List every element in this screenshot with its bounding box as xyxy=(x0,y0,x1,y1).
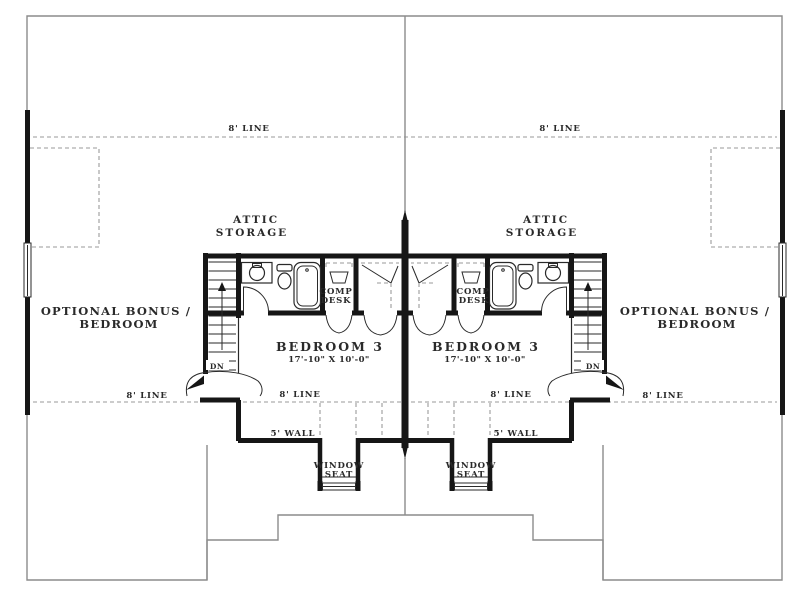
bay-window-jamb xyxy=(356,481,361,491)
closet xyxy=(361,263,399,335)
label-8ft-line-top-left: 8' LINE xyxy=(228,124,269,134)
party-wall xyxy=(402,210,409,459)
door-leaf-icon xyxy=(186,376,204,391)
label-8ft-line-mid-centerright: 8' LINE xyxy=(490,390,531,400)
label-5ft-wall-left: 5' WALL xyxy=(271,429,316,439)
label-bonus-right-2: BEDROOM xyxy=(657,317,736,331)
label-attic-left-2: STORAGE xyxy=(216,227,288,239)
label-bedroom3-dims-left: 17'-10" X 10'-0" xyxy=(288,355,369,365)
label-attic-right-2: STORAGE xyxy=(506,227,578,239)
label-bedroom3-dims-right: 17'-10" X 10'-0" xyxy=(444,355,525,365)
desk-icon xyxy=(330,272,348,283)
desk-dashed-shelf xyxy=(326,263,352,270)
stair-direction-arrow-icon xyxy=(218,282,226,291)
label-window-seat-right-2: SEAT xyxy=(457,470,485,480)
floor-plan: 8' LINE 8' LINE ATTIC STORAGE ATTIC STOR… xyxy=(0,0,800,594)
stair-double-door xyxy=(186,371,262,400)
closet-dashed-lines xyxy=(377,283,391,310)
label-comp-left-2: DESK xyxy=(321,296,352,306)
label-window-seat-left-2: SEAT xyxy=(325,470,353,480)
label-bonus-left-1: OPTIONAL BONUS / xyxy=(41,304,191,318)
label-dn-left: DN xyxy=(210,362,224,371)
staircase xyxy=(206,262,236,370)
label-bedroom3-left: BEDROOM 3 xyxy=(276,339,384,354)
party-wall-body xyxy=(402,220,409,448)
bathtub-inner xyxy=(297,266,318,306)
toilet-bowl-icon xyxy=(278,273,291,289)
bathtub-drain-icon xyxy=(306,269,309,272)
label-attic-left-1: ATTIC xyxy=(232,214,279,226)
label-8ft-line-mid-right: 8' LINE xyxy=(642,391,683,401)
floor-plan-drawing: 8' LINE 8' LINE ATTIC STORAGE ATTIC STOR… xyxy=(0,0,800,594)
label-8ft-line-mid-left: 8' LINE xyxy=(126,391,167,401)
closet-rod-lines xyxy=(362,265,398,283)
label-8ft-line-top-right: 8' LINE xyxy=(539,124,580,134)
label-comp-right-2: DESK xyxy=(459,296,490,306)
bay-window-jamb xyxy=(318,481,323,491)
bay-dashed-projections xyxy=(320,403,382,437)
label-bedroom3-right: BEDROOM 3 xyxy=(432,339,540,354)
label-attic-right-1: ATTIC xyxy=(522,214,569,226)
label-bonus-right-1: OPTIONAL BONUS / xyxy=(620,304,770,318)
bathroom-door-swing xyxy=(244,287,269,312)
knee-wall-dashed-rect xyxy=(30,148,99,247)
party-wall-bottom-arrow-icon xyxy=(402,444,409,459)
label-5ft-wall-right: 5' WALL xyxy=(494,429,539,439)
bathroom xyxy=(242,263,321,313)
label-dn-right: DN xyxy=(586,362,600,371)
label-bonus-left-2: BEDROOM xyxy=(79,317,158,331)
party-wall-top-arrow-icon xyxy=(402,210,409,224)
closet-door-swings xyxy=(364,315,397,335)
toilet-tank-icon xyxy=(277,265,292,272)
desk-door-swings xyxy=(326,315,352,333)
label-8ft-line-mid-centerleft: 8' LINE xyxy=(279,390,320,400)
